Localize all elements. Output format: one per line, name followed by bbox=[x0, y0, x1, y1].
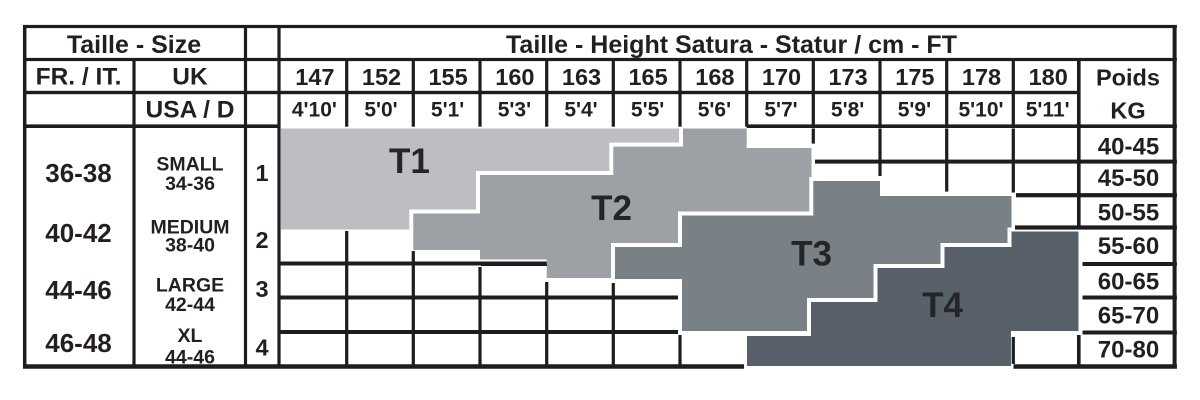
svg-text:Taille - Height Satura - Statu: Taille - Height Satura - Statur / cm - F… bbox=[506, 31, 957, 59]
svg-text:T3: T3 bbox=[791, 235, 832, 274]
svg-text:5'9': 5'9' bbox=[898, 98, 931, 121]
svg-text:168: 168 bbox=[695, 64, 734, 90]
svg-text:36-38: 36-38 bbox=[45, 158, 112, 188]
svg-text:5'6': 5'6' bbox=[698, 98, 731, 121]
svg-text:UK: UK bbox=[172, 64, 208, 91]
svg-text:5'7': 5'7' bbox=[764, 98, 797, 121]
svg-text:1: 1 bbox=[255, 160, 268, 186]
svg-text:160: 160 bbox=[495, 64, 534, 90]
svg-text:Poids: Poids bbox=[1096, 64, 1160, 90]
svg-text:180: 180 bbox=[1029, 64, 1068, 90]
svg-text:FR. / IT.: FR. / IT. bbox=[36, 64, 122, 91]
svg-text:46-48: 46-48 bbox=[45, 328, 112, 358]
svg-text:Taille - Size: Taille - Size bbox=[67, 31, 201, 59]
svg-text:40-42: 40-42 bbox=[45, 218, 112, 248]
svg-text:T4: T4 bbox=[922, 286, 963, 325]
svg-text:3: 3 bbox=[255, 276, 268, 302]
svg-text:USA / D: USA / D bbox=[146, 97, 235, 124]
svg-text:T2: T2 bbox=[591, 189, 632, 228]
svg-text:2: 2 bbox=[255, 227, 268, 253]
svg-text:60-65: 60-65 bbox=[1098, 269, 1159, 296]
svg-text:165: 165 bbox=[628, 64, 667, 90]
svg-text:34-36: 34-36 bbox=[165, 173, 215, 195]
svg-text:4: 4 bbox=[255, 334, 268, 360]
svg-text:KG: KG bbox=[1110, 97, 1145, 123]
svg-text:44-46: 44-46 bbox=[165, 347, 215, 369]
svg-text:5'11': 5'11' bbox=[1026, 98, 1070, 121]
svg-text:T1: T1 bbox=[389, 142, 430, 181]
svg-text:173: 173 bbox=[828, 64, 867, 90]
svg-text:5'8': 5'8' bbox=[831, 98, 864, 121]
svg-text:42-44: 42-44 bbox=[165, 294, 215, 316]
svg-text:70-80: 70-80 bbox=[1098, 337, 1159, 364]
svg-text:5'1': 5'1' bbox=[431, 98, 464, 121]
svg-text:40-45: 40-45 bbox=[1098, 134, 1159, 161]
svg-text:55-60: 55-60 bbox=[1098, 233, 1159, 260]
svg-text:170: 170 bbox=[762, 64, 801, 90]
svg-text:4'10': 4'10' bbox=[292, 98, 337, 121]
svg-text:5'4': 5'4' bbox=[564, 98, 597, 121]
svg-text:155: 155 bbox=[428, 64, 467, 90]
svg-text:152: 152 bbox=[362, 64, 401, 90]
svg-text:65-70: 65-70 bbox=[1098, 303, 1159, 330]
svg-text:5'10': 5'10' bbox=[958, 98, 1003, 121]
svg-text:147: 147 bbox=[295, 64, 334, 90]
svg-text:50-55: 50-55 bbox=[1098, 200, 1159, 227]
svg-text:5'3': 5'3' bbox=[498, 98, 531, 121]
svg-text:44-46: 44-46 bbox=[45, 275, 112, 305]
svg-text:38-40: 38-40 bbox=[165, 235, 215, 257]
svg-text:163: 163 bbox=[562, 64, 601, 90]
svg-text:XL: XL bbox=[178, 325, 203, 347]
svg-text:5'0': 5'0' bbox=[364, 98, 397, 121]
svg-text:5'5': 5'5' bbox=[631, 98, 664, 121]
svg-text:178: 178 bbox=[962, 64, 1001, 90]
svg-text:175: 175 bbox=[895, 64, 934, 90]
svg-text:45-50: 45-50 bbox=[1098, 165, 1159, 192]
